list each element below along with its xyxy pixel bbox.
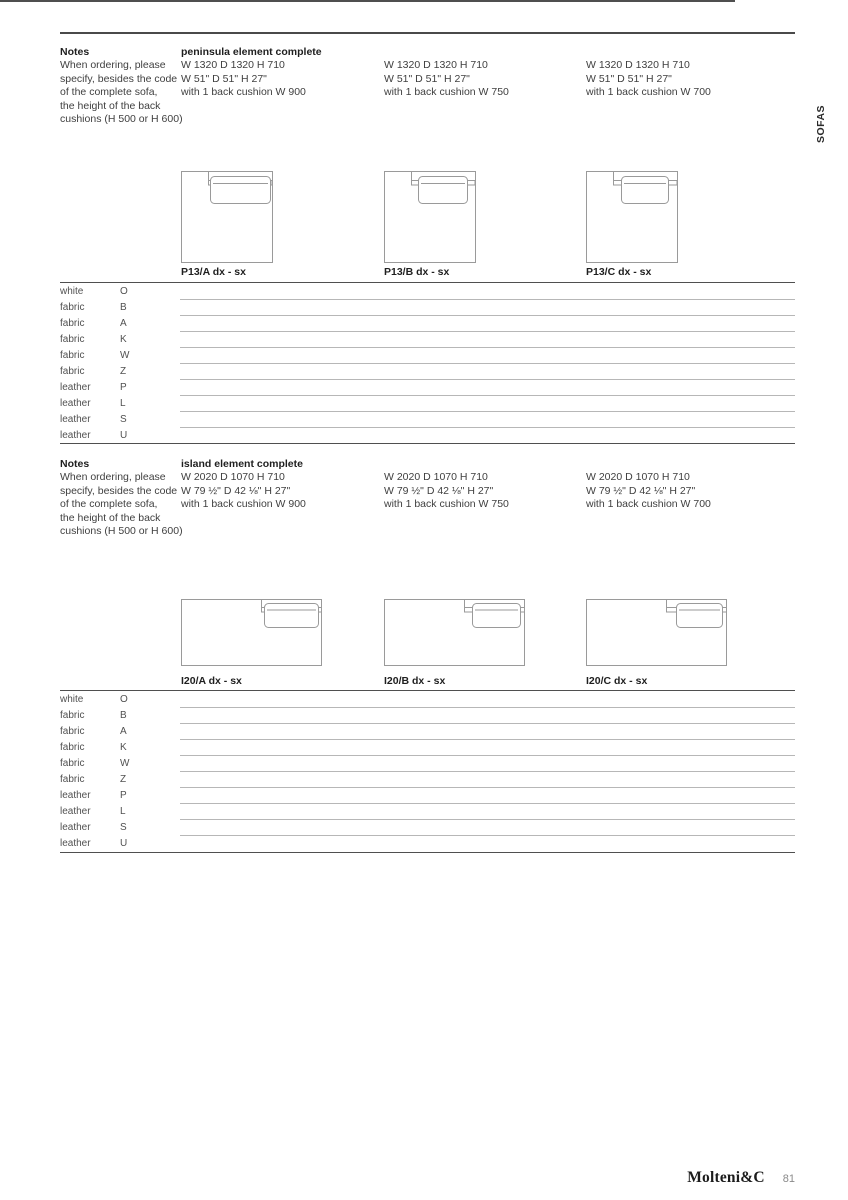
table-row: fabric W	[60, 347, 795, 363]
notes-line: When ordering, please	[60, 59, 185, 72]
cushion-spec: with 1 back cushion W 900	[181, 86, 376, 99]
table-row: leather P	[60, 788, 795, 804]
table-row: fabric A	[60, 723, 795, 739]
section-heading: peninsula element complete	[181, 46, 376, 59]
variant-code-label: P13/B dx - sx	[384, 266, 449, 278]
variant-code-label: I20/A dx - sx	[181, 675, 242, 687]
material-code: P	[120, 790, 180, 801]
table-row: fabric B	[60, 299, 795, 315]
material-label: fabric	[60, 726, 120, 737]
sofa-topview-diagram-p13b	[384, 171, 476, 263]
dimensions-imperial: W 51" D 51" H 27"	[181, 73, 376, 86]
dimensions-imperial: W 51" D 51" H 27"	[586, 73, 781, 86]
material-label: fabric	[60, 366, 120, 377]
variant-code-label: P13/C dx - sx	[586, 266, 651, 278]
material-code: U	[120, 430, 180, 441]
variant-column-p13b: W 1320 D 1320 H 710 W 51" D 51" H 27" wi…	[384, 59, 579, 99]
material-code: O	[120, 694, 180, 705]
cushion-spec: with 1 back cushion W 750	[384, 498, 579, 511]
material-code: K	[120, 742, 180, 753]
table-row: fabric K	[60, 331, 795, 347]
footer: Molteni&C 81	[687, 1169, 795, 1187]
material-code: P	[120, 382, 180, 393]
table-row: fabric B	[60, 707, 795, 723]
material-label: leather	[60, 838, 120, 849]
dimensions-imperial: W 51" D 51" H 27"	[384, 73, 579, 86]
material-label: fabric	[60, 710, 120, 721]
notes-title: Notes	[60, 458, 185, 471]
material-code: S	[120, 414, 180, 425]
table-row: leather P	[60, 379, 795, 395]
table-row: white O	[60, 691, 795, 707]
variant-column-i20a: island element complete W 2020 D 1070 H …	[181, 458, 376, 512]
brand-logo: Molteni&C	[687, 1169, 765, 1187]
material-label: white	[60, 694, 120, 705]
notes-line: specify, besides the code	[60, 73, 185, 86]
notes-line: specify, besides the code	[60, 485, 185, 498]
notes-block-island: Notes When ordering, please specify, bes…	[60, 458, 185, 538]
table-row: leather S	[60, 820, 795, 836]
variant-column-p13a: peninsula element complete W 1320 D 1320…	[181, 46, 376, 100]
material-code: U	[120, 838, 180, 849]
dimensions-imperial: W 79 ½" D 42 ⅛" H 27"	[384, 485, 579, 498]
catalog-page: SOFAS Notes When ordering, please specif…	[0, 0, 848, 1200]
price-table-island: white O fabric B fabric A fabric K fabri…	[60, 690, 795, 853]
material-code: O	[120, 286, 180, 297]
cushion-spec: with 1 back cushion W 700	[586, 498, 781, 511]
table-row: leather U	[60, 836, 795, 852]
variant-code-label: I20/B dx - sx	[384, 675, 445, 687]
sofa-topview-diagram-i20a	[181, 599, 322, 666]
table-row: leather L	[60, 804, 795, 820]
dimensions-imperial: W 79 ½" D 42 ⅛" H 27"	[181, 485, 376, 498]
cushion-spec: with 1 back cushion W 900	[181, 498, 376, 511]
material-code: A	[120, 726, 180, 737]
table-row: fabric Z	[60, 771, 795, 787]
notes-line: cushions (H 500 or H 600)	[60, 113, 185, 126]
material-code: B	[120, 302, 180, 313]
page-number: 81	[783, 1173, 795, 1185]
table-row: fabric Z	[60, 363, 795, 379]
dimensions-metric: W 1320 D 1320 H 710	[181, 59, 376, 72]
dimensions-metric: W 2020 D 1070 H 710	[181, 471, 376, 484]
notes-block-peninsula: Notes When ordering, please specify, bes…	[60, 46, 185, 126]
material-label: fabric	[60, 774, 120, 785]
material-label: fabric	[60, 758, 120, 769]
material-label: fabric	[60, 302, 120, 313]
sofa-topview-diagram-i20c	[586, 599, 727, 666]
material-label: leather	[60, 382, 120, 393]
variant-column-p13c: W 1320 D 1320 H 710 W 51" D 51" H 27" wi…	[586, 59, 781, 99]
side-tab-label: SOFAS	[815, 105, 827, 143]
notes-title: Notes	[60, 46, 185, 59]
material-label: leather	[60, 398, 120, 409]
sofa-topview-diagram-p13a	[181, 171, 273, 263]
sofa-topview-diagram-p13c	[586, 171, 678, 263]
material-code: B	[120, 710, 180, 721]
variant-column-i20c: W 2020 D 1070 H 710 W 79 ½" D 42 ⅛" H 27…	[586, 471, 781, 511]
material-code: S	[120, 822, 180, 833]
footer-rule	[0, 0, 735, 2]
material-code: Z	[120, 366, 180, 377]
notes-line: of the complete sofa,	[60, 498, 185, 511]
material-code: W	[120, 758, 180, 769]
cushion-spec: with 1 back cushion W 750	[384, 86, 579, 99]
material-label: fabric	[60, 350, 120, 361]
top-rule	[60, 32, 795, 34]
material-code: L	[120, 398, 180, 409]
material-code: L	[120, 806, 180, 817]
table-row: leather S	[60, 411, 795, 427]
dimensions-imperial: W 79 ½" D 42 ⅛" H 27"	[586, 485, 781, 498]
material-code: Z	[120, 774, 180, 785]
price-table-peninsula: white O fabric B fabric A fabric K fabri…	[60, 282, 795, 444]
table-row: white O	[60, 283, 795, 299]
notes-line: the height of the back	[60, 512, 185, 525]
material-label: leather	[60, 790, 120, 801]
dimensions-metric: W 2020 D 1070 H 710	[384, 471, 579, 484]
dimensions-metric: W 1320 D 1320 H 710	[586, 59, 781, 72]
material-label: white	[60, 286, 120, 297]
variant-code-label: I20/C dx - sx	[586, 675, 647, 687]
table-row: leather L	[60, 395, 795, 411]
material-label: fabric	[60, 334, 120, 345]
material-label: leather	[60, 822, 120, 833]
variant-column-i20b: W 2020 D 1070 H 710 W 79 ½" D 42 ⅛" H 27…	[384, 471, 579, 511]
notes-line: the height of the back	[60, 100, 185, 113]
variant-code-label: P13/A dx - sx	[181, 266, 246, 278]
table-row: fabric K	[60, 739, 795, 755]
notes-line: cushions (H 500 or H 600)	[60, 525, 185, 538]
material-code: W	[120, 350, 180, 361]
material-label: leather	[60, 806, 120, 817]
side-tab: SOFAS	[806, 96, 836, 152]
table-row: fabric A	[60, 315, 795, 331]
dimensions-metric: W 2020 D 1070 H 710	[586, 471, 781, 484]
dimensions-metric: W 1320 D 1320 H 710	[384, 59, 579, 72]
material-label: leather	[60, 430, 120, 441]
cushion-spec: with 1 back cushion W 700	[586, 86, 781, 99]
material-code: K	[120, 334, 180, 345]
section-heading: island element complete	[181, 458, 376, 471]
material-label: fabric	[60, 318, 120, 329]
notes-line: When ordering, please	[60, 471, 185, 484]
material-code: A	[120, 318, 180, 329]
sofa-topview-diagram-i20b	[384, 599, 525, 666]
table-row: fabric W	[60, 755, 795, 771]
material-label: fabric	[60, 742, 120, 753]
table-row: leather U	[60, 427, 795, 443]
material-label: leather	[60, 414, 120, 425]
notes-line: of the complete sofa,	[60, 86, 185, 99]
